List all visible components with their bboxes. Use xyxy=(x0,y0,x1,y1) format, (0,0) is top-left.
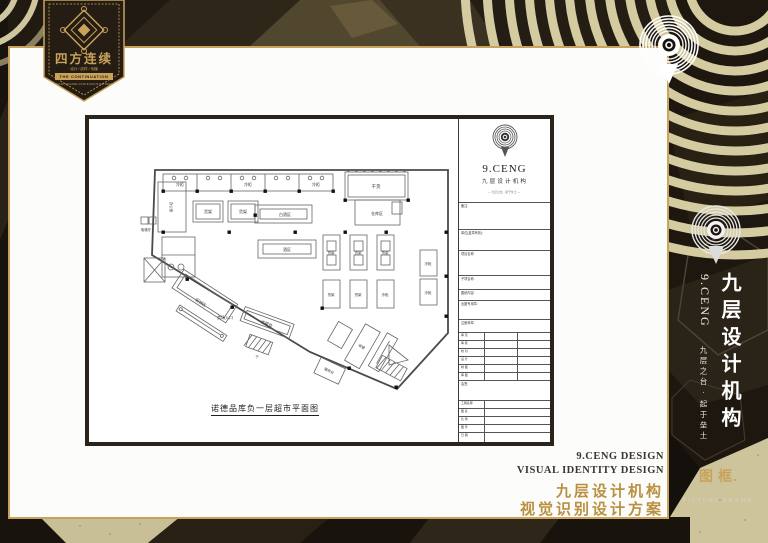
field-label: 单位(盖章有效): xyxy=(461,231,483,236)
brand-badge: 四方连续 · 设计 / 纹样 / 传播 · THE CONTINUATION F… xyxy=(43,0,125,102)
note-label: 备注: xyxy=(461,204,468,209)
info-row: 工程名称 xyxy=(459,401,550,409)
plan-label-lift: 电梯厅 xyxy=(141,227,152,232)
info-row: 图 名 xyxy=(459,409,550,417)
plan-label-down: 下 xyxy=(255,355,259,359)
badge-subtitle: · 设计 / 纹样 / 传播 · xyxy=(68,66,100,71)
plan-label-shelf: 货架 xyxy=(355,292,363,297)
personnel-label: 校 对 xyxy=(461,349,468,353)
sidebar-section-en: PICTURE FRAME xyxy=(668,497,768,504)
poster-canvas: 四方连续 · 设计 / 纹样 / 传播 · THE CONTINUATION F… xyxy=(0,0,768,543)
footer-cn-line1: 九层设计机构 xyxy=(517,483,664,501)
field-label: 注册师章: xyxy=(461,321,474,326)
personnel-row: 审 图 xyxy=(459,373,550,381)
title-block-field-cell: 单位(盖章有效): xyxy=(459,230,550,251)
title-block-tagline: — 九层之台 · 起于垒土 — xyxy=(488,190,520,194)
field-label: 项目名称: xyxy=(461,252,474,257)
personnel-label: 设 计 xyxy=(461,357,468,361)
plan-label-drink: 酒区 xyxy=(283,246,291,252)
footer-en-line1: 9.CENG DESIGN xyxy=(517,450,664,464)
rings-pin-logo-top-icon xyxy=(638,14,700,90)
personnel-row: 审 定 xyxy=(459,333,550,341)
plan-label-shelf: 货架 xyxy=(382,250,390,255)
rings-pin-logo-sidebar-icon xyxy=(690,204,742,270)
plan-label-service: 服务台 xyxy=(323,366,335,375)
personnel-label: 审 定 xyxy=(461,333,468,337)
plan-label-shelf: 货架 xyxy=(328,292,336,297)
sign-label: 会签: xyxy=(461,382,468,387)
info-row: 比 例 xyxy=(459,417,550,425)
field-label: 子项名称: xyxy=(461,277,474,282)
plan-label-shelf: 货架 xyxy=(328,250,336,255)
title-block-logo-cell: 9.CENG 九层设计机构 — 九层之台 · 起于垒土 — xyxy=(459,119,550,203)
plan-label-cooler: 冷柜 xyxy=(312,181,320,187)
title-block-brand-cn: 九层设计机构 xyxy=(481,178,527,186)
plan-label-dry: 干货 xyxy=(372,183,381,190)
footer-brand-block: 9.CENG DESIGN VISUAL IDENTITY DESIGN 九层设… xyxy=(517,450,664,519)
sidebar-brand-en: 9.CENG xyxy=(697,274,712,328)
sidebar-section-cn: 图框 xyxy=(668,466,768,486)
info-label: 图 名 xyxy=(461,409,468,413)
title-block-sign-cell: 会签: xyxy=(459,381,550,401)
plan-label-shelf: 货架 xyxy=(239,208,247,214)
personnel-row: 校 对 xyxy=(459,349,550,357)
plan-label-cooler: 冷柜 xyxy=(244,181,252,187)
info-label: 工程名称 xyxy=(461,401,473,405)
sidebar-brand-cn: 九层设计机构 xyxy=(715,272,744,434)
plan-label-entrance: 卖场入口 xyxy=(217,314,233,320)
plan-label-store: 仓库区 xyxy=(371,210,383,216)
floor-plan: 冷柜 冷柜 冷柜 干货 仓库区 办公室 电梯厅 货架 货架 白酒区 酒区 货架 … xyxy=(89,119,464,419)
title-block-field-cell: 注册师章: xyxy=(459,320,550,333)
plan-label-cooler: 冷柜 xyxy=(425,290,433,295)
plan-label-cooler: 冷柜 xyxy=(425,261,433,266)
info-label: 比 例 xyxy=(461,417,468,421)
personnel-label: 审 核 xyxy=(461,341,468,345)
footer-cn-line2: 视觉识别设计方案 xyxy=(517,501,664,519)
info-row: 日 期 xyxy=(459,433,550,442)
plan-label-office: 办公室 xyxy=(169,202,174,213)
plan-columns xyxy=(162,190,448,389)
title-block-field-cell: 子项名称: xyxy=(459,276,550,290)
personnel-label: 审 图 xyxy=(461,373,468,377)
badge-title: 四方连续 xyxy=(55,51,113,66)
plan-label-cash: 收银 xyxy=(357,343,366,351)
title-block-note-cell: 备注: xyxy=(459,203,550,230)
plan-label-wine: 白酒区 xyxy=(279,211,291,217)
personnel-row: 设 计 xyxy=(459,357,550,365)
personnel-label: 制 图 xyxy=(461,365,468,369)
plan-label-cooler: 冷柜 xyxy=(176,181,184,187)
title-block-pin-icon xyxy=(490,124,520,162)
field-label: 出图专用章: xyxy=(461,302,478,307)
badge-footnote: FOUR-SQUARE CONTINUOUS PATTERN xyxy=(55,82,113,86)
title-block: 9.CENG 九层设计机构 — 九层之台 · 起于垒土 — 备注: 单位(盖章有… xyxy=(458,119,550,442)
plan-caption: 诺德品库负一层超市平面图 xyxy=(211,403,319,416)
title-block-field-cell: 出图专用章: xyxy=(459,301,550,320)
info-label: 图 号 xyxy=(461,425,468,429)
drawing-frame: 冷柜 冷柜 冷柜 干货 仓库区 办公室 电梯厅 货架 货架 白酒区 酒区 货架 … xyxy=(85,115,554,446)
title-block-brand-en: 9.CENG xyxy=(482,163,526,175)
sidebar-motto: 九层之台·起于垒土 xyxy=(698,346,709,442)
plan-label-cooler: 冷柜 xyxy=(382,292,390,297)
personnel-row: 审 核 xyxy=(459,341,550,349)
badge-bar-text: THE CONTINUATION xyxy=(59,74,108,79)
field-label: 图纸内容: xyxy=(461,291,474,296)
plan-label-shelf: 货架 xyxy=(355,250,363,255)
footer-en-line2: VISUAL IDENTITY DESIGN xyxy=(517,464,664,478)
info-label: 日 期 xyxy=(461,433,468,437)
plan-label-shelf: 货架 xyxy=(204,208,212,214)
title-block-field-cell: 项目名称: xyxy=(459,251,550,276)
personnel-row: 制 图 xyxy=(459,365,550,373)
title-block-field-cell: 图纸内容: xyxy=(459,290,550,301)
info-row: 图 号 xyxy=(459,425,550,433)
